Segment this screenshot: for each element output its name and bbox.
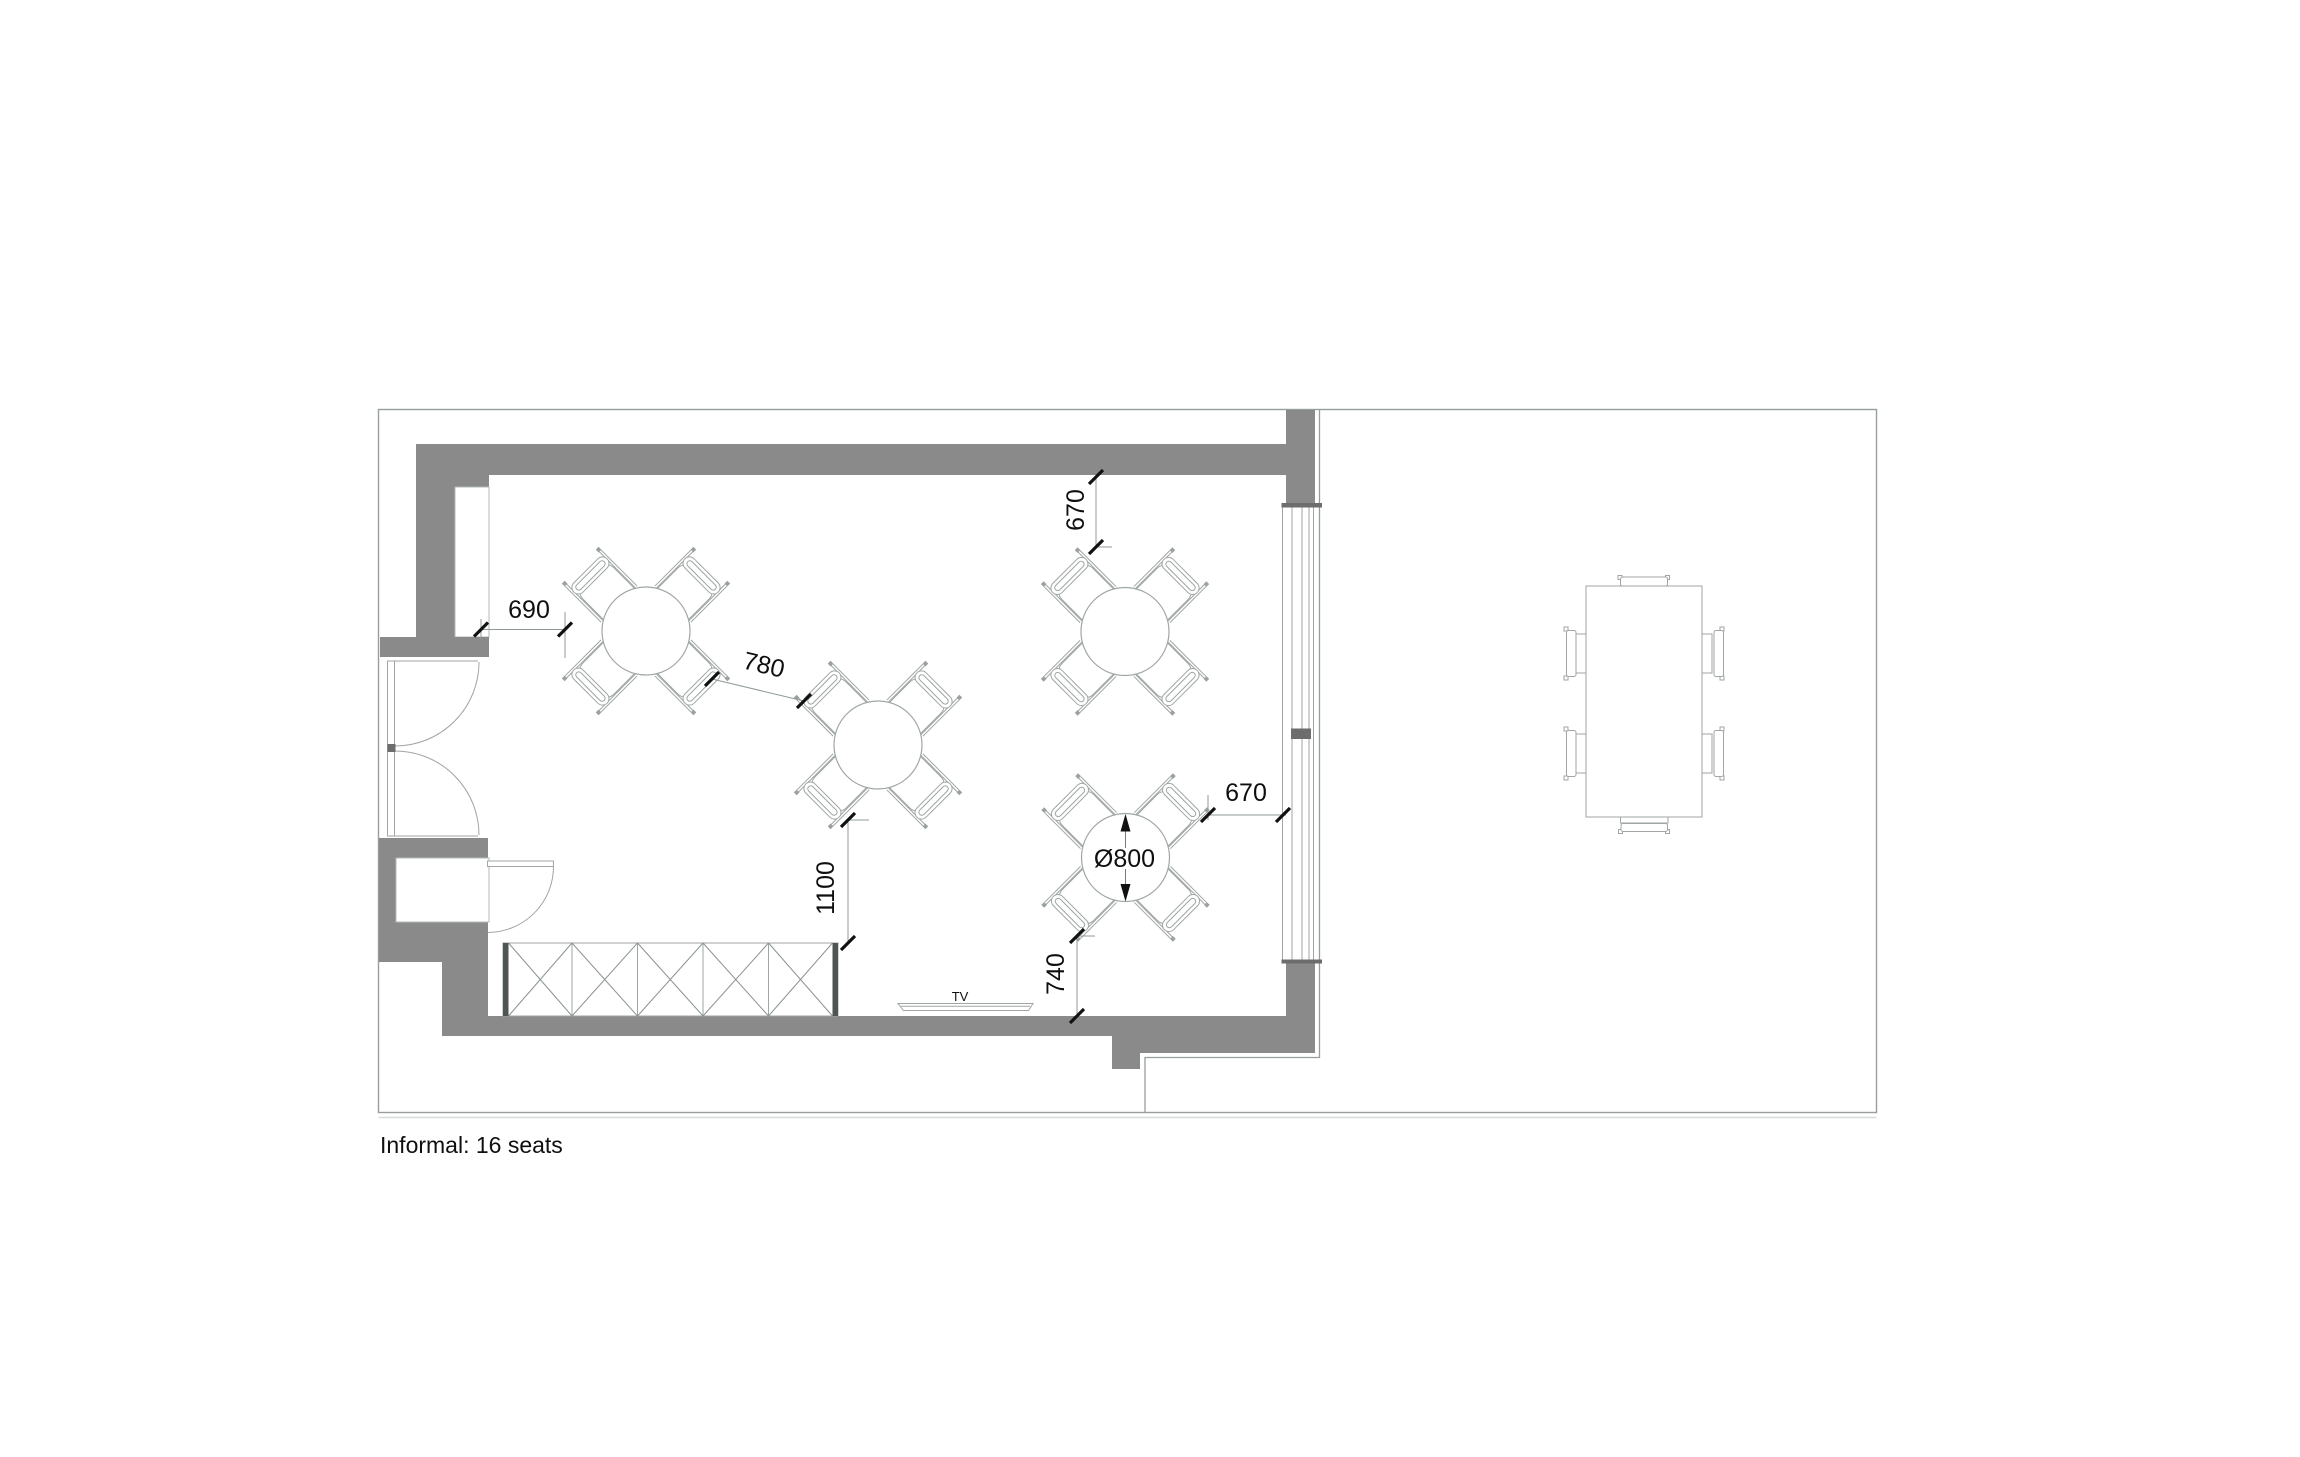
svg-text:Informal: 16 seats: Informal: 16 seats (380, 1132, 563, 1158)
svg-text:1100: 1100 (812, 861, 840, 915)
svg-text:Ø800: Ø800 (1094, 845, 1155, 873)
svg-text:670: 670 (1062, 489, 1090, 531)
svg-text:670: 670 (1225, 779, 1267, 807)
svg-text:TV: TV (952, 989, 969, 1004)
svg-text:690: 690 (508, 596, 550, 624)
svg-text:740: 740 (1042, 953, 1070, 995)
